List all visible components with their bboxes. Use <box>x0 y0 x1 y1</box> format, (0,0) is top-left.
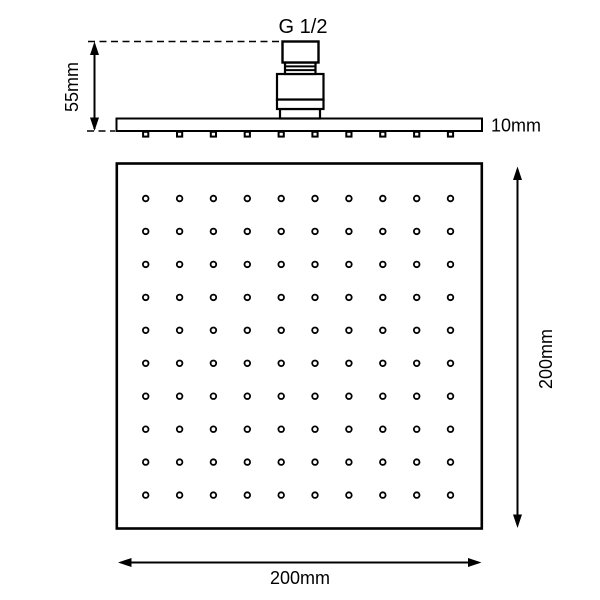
nozzle-hole <box>414 492 420 498</box>
nozzle-hole <box>414 459 420 465</box>
side-nozzle-row <box>143 132 453 137</box>
nozzle-hole <box>346 295 352 301</box>
nozzle-hole <box>143 262 149 268</box>
nozzle-hole <box>414 361 420 367</box>
side-nozzle <box>448 132 453 137</box>
connector-thread-label: G 1/2 <box>279 16 328 38</box>
nozzle-hole <box>177 262 183 268</box>
connector-band <box>277 100 324 110</box>
nozzle-hole <box>414 295 420 301</box>
face-view: 200mm 200mm <box>117 164 556 589</box>
nozzle-hole <box>177 361 183 367</box>
nozzle-hole <box>177 328 183 334</box>
nozzle-hole <box>380 361 386 367</box>
arrowhead-right-icon <box>468 558 482 567</box>
arrowhead-up-icon <box>90 42 99 56</box>
nozzle-hole <box>312 262 318 268</box>
nozzle-hole <box>177 459 183 465</box>
nozzle-hole <box>211 459 217 465</box>
nozzle-hole <box>278 262 284 268</box>
nozzle-hole <box>448 295 454 301</box>
nozzle-hole <box>211 262 217 268</box>
nozzle-hole <box>346 393 352 399</box>
nozzle-hole <box>278 229 284 235</box>
nozzle-hole <box>346 492 352 498</box>
nozzle-hole <box>177 229 183 235</box>
nozzle-hole <box>448 492 454 498</box>
nozzle-hole <box>346 196 352 202</box>
nozzle-hole <box>278 328 284 334</box>
nozzle-hole <box>414 426 420 432</box>
plate-thickness-label: 10mm <box>491 116 541 136</box>
nozzle-hole <box>143 295 149 301</box>
nozzle-hole <box>245 361 251 367</box>
nozzle-hole <box>211 196 217 202</box>
connector-assembly <box>277 42 324 119</box>
nozzle-hole <box>211 328 217 334</box>
nozzle-hole <box>278 196 284 202</box>
side-nozzle <box>143 132 148 137</box>
side-nozzle <box>312 132 317 137</box>
nozzle-hole <box>245 426 251 432</box>
nozzle-hole <box>380 229 386 235</box>
nozzle-hole <box>211 361 217 367</box>
shower-head-technical-drawing: 55mm G 1/2 10mm <box>0 0 600 600</box>
connector-thread <box>283 42 319 63</box>
nozzle-hole <box>380 393 386 399</box>
nozzle-hole <box>245 492 251 498</box>
nozzle-hole <box>245 459 251 465</box>
nozzle-hole <box>312 492 318 498</box>
nozzle-hole <box>312 361 318 367</box>
arrowhead-down-icon <box>513 515 522 529</box>
nozzle-hole <box>448 196 454 202</box>
nozzle-hole <box>346 361 352 367</box>
nozzle-hole <box>346 229 352 235</box>
nozzle-hole <box>278 459 284 465</box>
nozzle-hole <box>346 426 352 432</box>
side-nozzle <box>414 132 419 137</box>
nozzle-hole <box>211 295 217 301</box>
nozzle-hole <box>211 229 217 235</box>
nozzle-hole <box>278 361 284 367</box>
nozzle-hole <box>278 295 284 301</box>
nozzle-hole <box>278 426 284 432</box>
plate-side-profile <box>117 119 483 132</box>
nozzle-hole <box>380 262 386 268</box>
nozzle-hole <box>211 492 217 498</box>
side-nozzle <box>346 132 351 137</box>
nozzle-hole <box>380 426 386 432</box>
nozzle-hole <box>245 295 251 301</box>
side-nozzle <box>380 132 385 137</box>
connector-collar <box>285 63 316 75</box>
nozzle-hole <box>177 196 183 202</box>
nozzle-hole <box>346 328 352 334</box>
nozzle-hole <box>448 229 454 235</box>
nozzle-hole <box>143 459 149 465</box>
nozzle-hole <box>346 459 352 465</box>
nozzle-hole <box>414 393 420 399</box>
nozzle-hole <box>448 328 454 334</box>
nozzle-hole <box>380 328 386 334</box>
nozzle-hole <box>245 229 251 235</box>
arrowhead-left-icon <box>118 558 132 567</box>
nozzle-hole <box>143 229 149 235</box>
nozzle-hole <box>414 328 420 334</box>
nozzle-hole <box>245 328 251 334</box>
connector-body <box>277 74 324 100</box>
nozzle-hole <box>177 295 183 301</box>
drawing-canvas: 55mm G 1/2 10mm <box>0 0 600 600</box>
nozzle-hole <box>245 262 251 268</box>
nozzle-hole <box>312 393 318 399</box>
side-height-label: 55mm <box>62 62 82 112</box>
side-view: 55mm G 1/2 10mm <box>62 16 541 137</box>
nozzle-hole <box>380 196 386 202</box>
arrowhead-up-icon <box>513 167 522 181</box>
side-nozzle <box>245 132 250 137</box>
nozzle-hole <box>245 196 251 202</box>
arrowhead-down-icon <box>90 118 99 132</box>
nozzle-hole <box>312 295 318 301</box>
nozzle-hole <box>177 426 183 432</box>
side-nozzle <box>211 132 216 137</box>
side-nozzle <box>279 132 284 137</box>
nozzle-hole <box>448 459 454 465</box>
nozzle-hole <box>143 361 149 367</box>
nozzle-hole <box>346 262 352 268</box>
nozzle-hole <box>211 426 217 432</box>
nozzle-hole <box>143 393 149 399</box>
nozzle-hole <box>414 196 420 202</box>
nozzle-hole <box>414 262 420 268</box>
connector-base <box>280 109 320 119</box>
nozzle-hole <box>312 426 318 432</box>
nozzle-hole <box>312 229 318 235</box>
face-width-label: 200mm <box>270 568 330 588</box>
nozzle-hole <box>414 229 420 235</box>
side-nozzle <box>177 132 182 137</box>
nozzle-hole <box>312 328 318 334</box>
nozzle-hole <box>278 492 284 498</box>
nozzle-hole <box>211 393 217 399</box>
nozzle-hole <box>143 426 149 432</box>
nozzle-hole <box>380 492 386 498</box>
nozzle-hole <box>448 393 454 399</box>
nozzle-hole <box>177 492 183 498</box>
nozzle-hole <box>448 426 454 432</box>
nozzle-hole <box>312 196 318 202</box>
nozzle-hole <box>278 393 284 399</box>
nozzle-hole <box>380 295 386 301</box>
nozzle-hole <box>177 393 183 399</box>
nozzle-hole <box>143 492 149 498</box>
nozzle-hole <box>245 393 251 399</box>
nozzle-hole <box>380 459 386 465</box>
face-height-label: 200mm <box>536 329 556 389</box>
nozzle-hole <box>143 196 149 202</box>
nozzle-hole <box>312 459 318 465</box>
nozzle-hole <box>448 262 454 268</box>
nozzle-hole <box>143 328 149 334</box>
face-plate-outline <box>117 164 482 529</box>
nozzle-hole <box>448 361 454 367</box>
